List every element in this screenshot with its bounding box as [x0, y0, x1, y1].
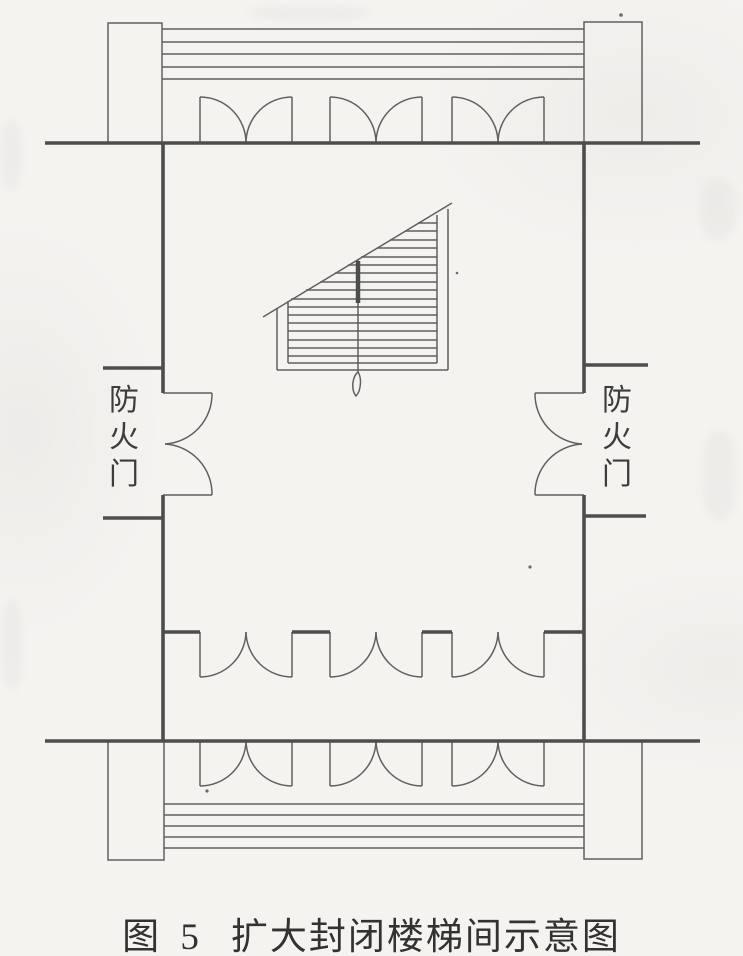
figure-number: 图 5 — [122, 917, 205, 956]
fire-door-label-left: 防火门 — [106, 382, 142, 493]
thin-linework — [108, 13, 642, 860]
door-swing-row-bottom — [200, 741, 544, 786]
fire-door-label-right: 防火门 — [599, 382, 635, 493]
window-band-top — [162, 29, 584, 79]
fire-door-left — [163, 393, 212, 495]
stair-direction-tail — [353, 372, 361, 396]
window-band-bottom — [164, 804, 584, 848]
figure-caption: 图 5扩大封闭楼梯间示意图 — [0, 906, 743, 956]
fire-door-right — [535, 393, 584, 495]
scanned-document-page: 防火门 防火门 图 5扩大封闭楼梯间示意图 — [0, 0, 743, 956]
column-bottom-right — [584, 741, 642, 859]
door-swing-row-top — [200, 97, 544, 143]
column-top-right — [584, 22, 642, 143]
column-bottom-left — [108, 741, 164, 860]
column-top-left — [108, 23, 162, 143]
door-swing-row-middle — [200, 632, 544, 677]
figure-title: 扩大封闭楼梯间示意图 — [231, 917, 621, 956]
